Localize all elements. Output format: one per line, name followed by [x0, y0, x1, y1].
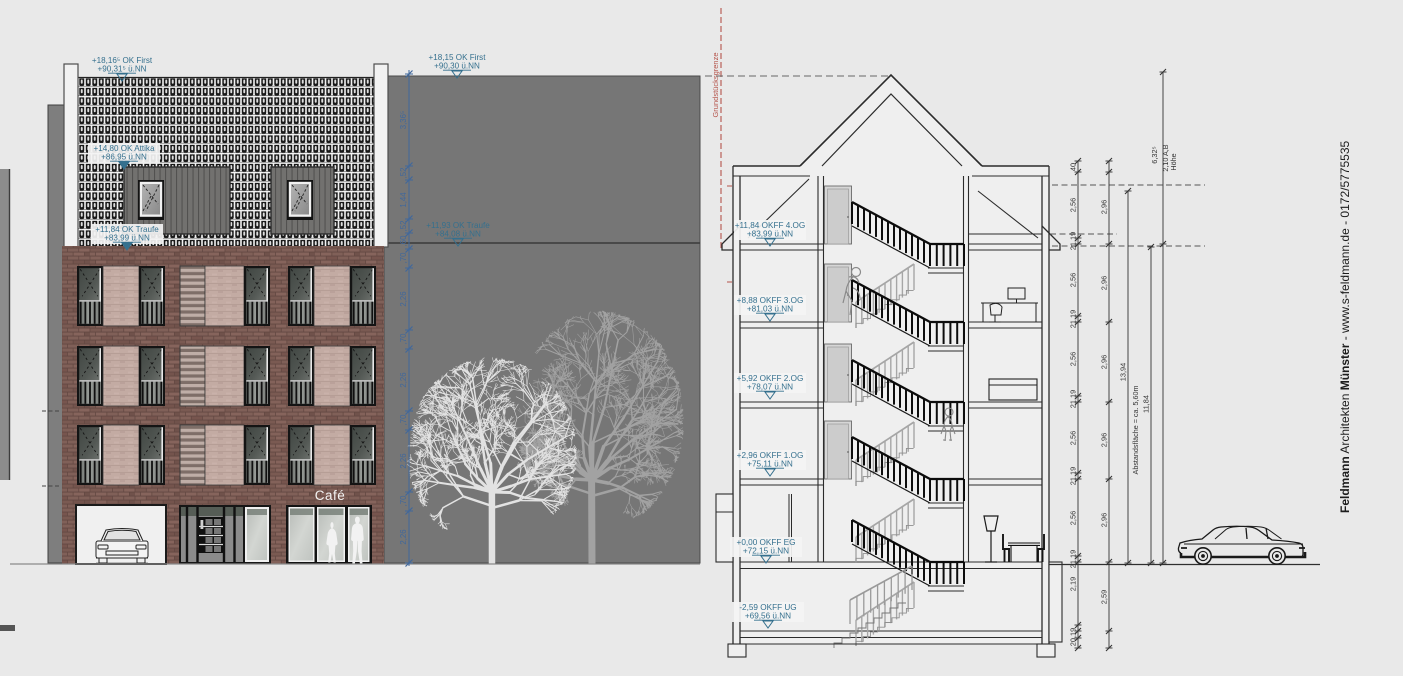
svg-text:+72,15 ü.NN: +72,15 ü.NN — [743, 546, 789, 555]
svg-text:+83,99 ü.NN: +83,99 ü.NN — [747, 229, 793, 238]
svg-text:2,96: 2,96 — [1100, 433, 1109, 447]
svg-text:1,44: 1,44 — [399, 192, 408, 208]
svg-text:,60: ,60 — [399, 235, 408, 247]
svg-text:2,56: 2,56 — [1069, 431, 1078, 445]
svg-text:2,56: 2,56 — [1069, 198, 1078, 212]
svg-text:+69,56 ü.NN: +69,56 ü.NN — [745, 611, 791, 620]
svg-text:2,96: 2,96 — [1100, 355, 1109, 369]
svg-text:+78,07 ü.NN: +78,07 ü.NN — [747, 382, 793, 391]
svg-text:2,26: 2,26 — [399, 453, 408, 468]
svg-text:2,26: 2,26 — [399, 529, 408, 544]
svg-text:13,94: 13,94 — [1119, 363, 1128, 382]
svg-text:20,19: 20,19 — [1069, 628, 1078, 647]
svg-text:21,19: 21,19 — [1069, 467, 1078, 486]
svg-text:2,26: 2,26 — [399, 372, 408, 387]
svg-text:+83,99 ü.NN: +83,99 ü.NN — [104, 233, 150, 242]
svg-text:21,19: 21,19 — [1069, 310, 1078, 329]
svg-text:,70: ,70 — [399, 495, 408, 507]
svg-text:40: 40 — [1069, 163, 1078, 171]
svg-text:6,32⁵: 6,32⁵ — [1150, 146, 1159, 163]
svg-text:Grundstücksgrenze: Grundstücksgrenze — [711, 52, 720, 117]
svg-text:2,56: 2,56 — [1069, 352, 1078, 366]
svg-text:21,19: 21,19 — [1069, 550, 1078, 569]
svg-text:21,19: 21,19 — [1069, 390, 1078, 409]
svg-text:2,19: 2,19 — [1069, 577, 1078, 591]
svg-text:,52: ,52 — [399, 168, 408, 179]
svg-text:2,96: 2,96 — [1100, 513, 1109, 527]
svg-text:2,56: 2,56 — [1069, 511, 1078, 525]
svg-text:+90,31⁵ ü.NN: +90,31⁵ ü.NN — [97, 64, 146, 73]
svg-text:2,56: 2,56 — [1069, 273, 1078, 287]
svg-text:+84,08 ü.NN: +84,08 ü.NN — [435, 229, 481, 238]
svg-text:+81,03 ü.NN: +81,03 ü.NN — [747, 304, 793, 313]
svg-text:2,26: 2,26 — [399, 291, 408, 306]
svg-text:,70: ,70 — [399, 252, 408, 264]
svg-text:Höhe: Höhe — [1169, 153, 1178, 170]
svg-text:,52: ,52 — [399, 221, 408, 232]
svg-text:+90,30 ü.NN: +90,30 ü.NN — [434, 61, 480, 70]
svg-text:+75,11 ü.NN: +75,11 ü.NN — [747, 459, 793, 468]
svg-text:Abstandsfläche = ca. 5,60m: Abstandsfläche = ca. 5,60m — [1131, 386, 1140, 475]
svg-text:Feldmann Architekten Münster -: Feldmann Architekten Münster - www.s-fel… — [1338, 140, 1352, 513]
svg-text:,70: ,70 — [399, 414, 408, 426]
svg-text:,70: ,70 — [399, 333, 408, 345]
svg-text:21,19: 21,19 — [1069, 232, 1078, 251]
svg-text:2,59: 2,59 — [1100, 590, 1109, 604]
svg-text:Café: Café — [315, 488, 346, 503]
svg-text:11,84: 11,84 — [1142, 395, 1151, 413]
svg-text:+86,95 ü.NN: +86,95 ü.NN — [101, 152, 147, 161]
svg-text:2,96: 2,96 — [1100, 200, 1109, 214]
svg-text:2,96: 2,96 — [1100, 276, 1109, 290]
svg-text:3,36⁵: 3,36⁵ — [399, 111, 408, 129]
